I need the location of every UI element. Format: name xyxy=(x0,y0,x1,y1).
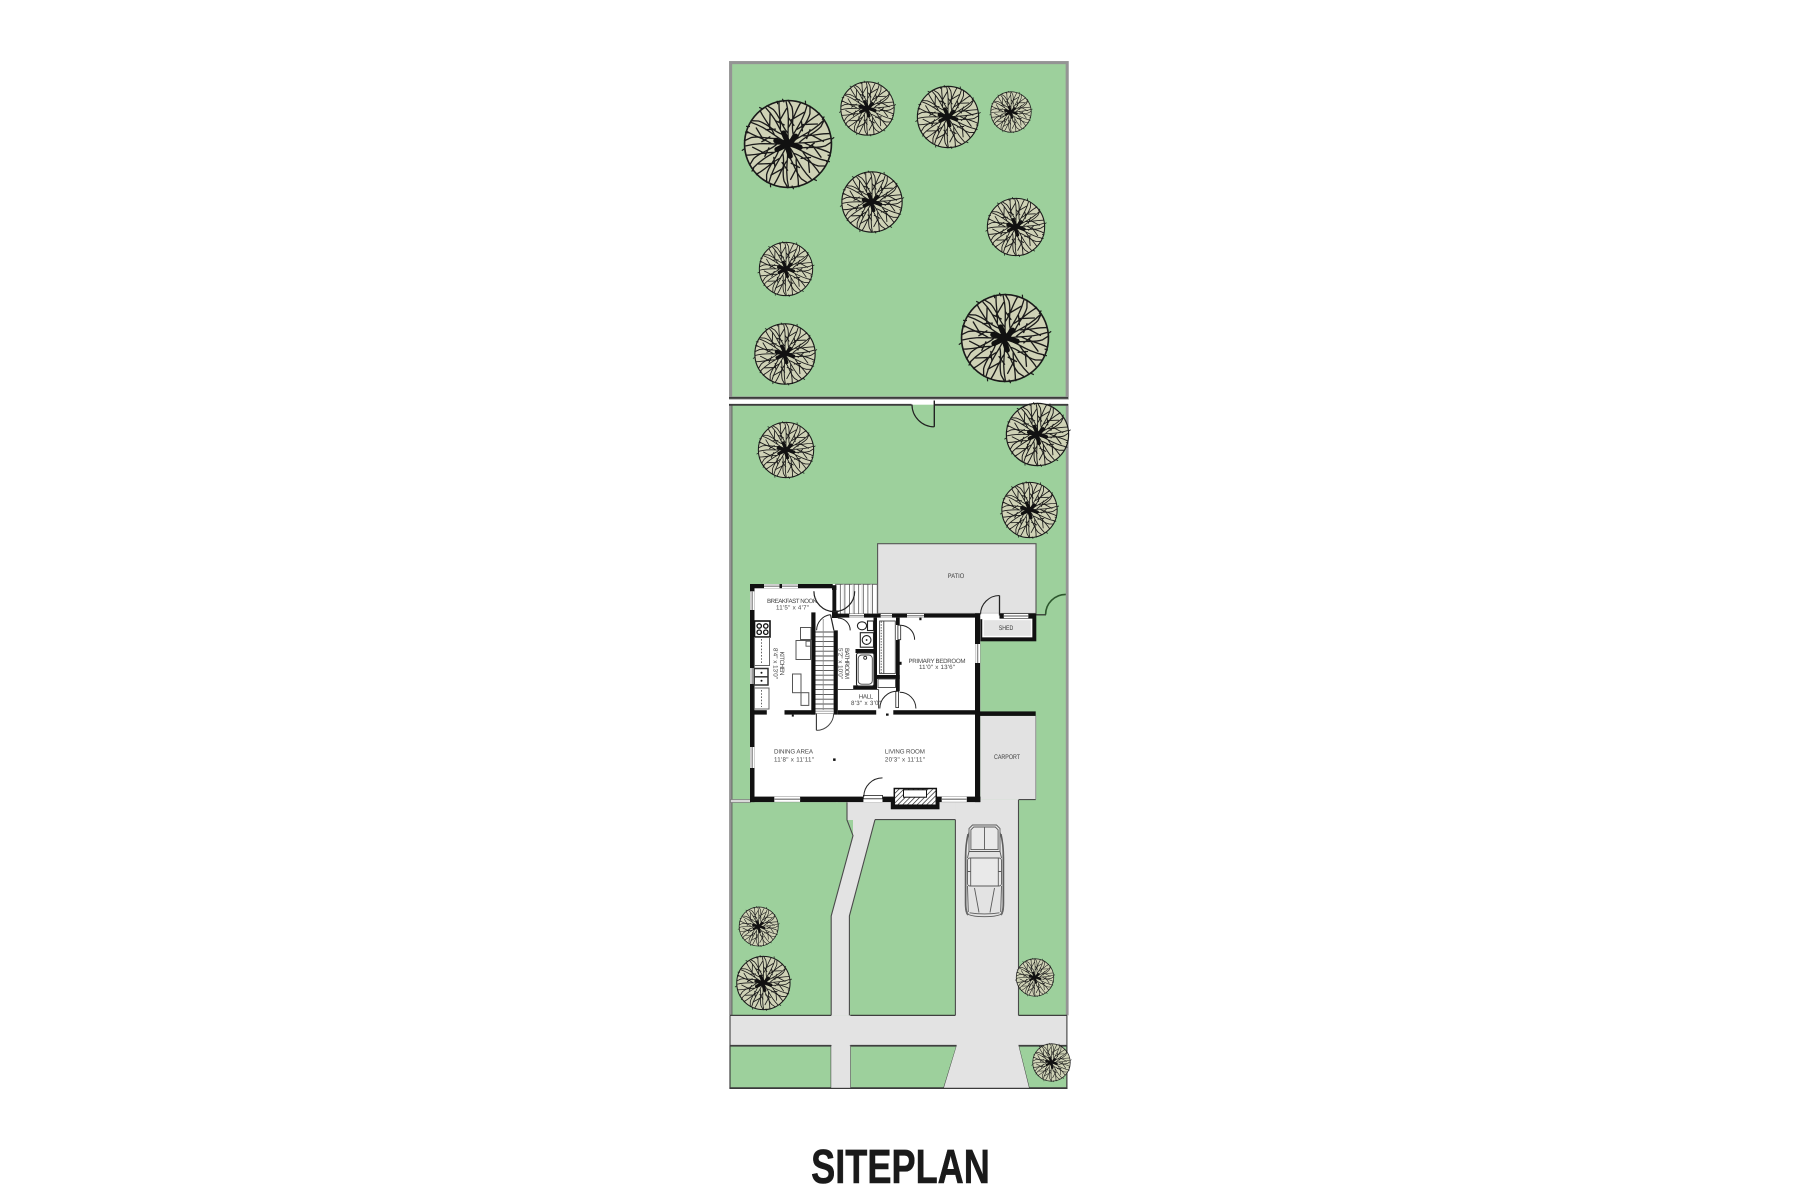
svg-text:8'3" x 3'0": 8'3" x 3'0" xyxy=(851,700,881,707)
svg-text:20'3" x 11'11": 20'3" x 11'11" xyxy=(885,756,925,763)
svg-text:SITEPLAN: SITEPLAN xyxy=(811,1141,990,1194)
svg-text:11'8" x 11'11": 11'8" x 11'11" xyxy=(774,756,814,763)
svg-text:SHED: SHED xyxy=(999,625,1014,632)
svg-text:PATIO: PATIO xyxy=(948,573,964,580)
svg-text:KITCHEN8'4" x 13'0": KITCHEN8'4" x 13'0" xyxy=(772,648,786,679)
svg-text:11'0" x 13'6": 11'0" x 13'6" xyxy=(919,664,955,671)
svg-text:DINING AREA: DINING AREA xyxy=(774,749,814,756)
svg-text:LIVING ROOM: LIVING ROOM xyxy=(885,749,925,756)
svg-text:BATHROOM5'2" x 10'0": BATHROOM5'2" x 10'0" xyxy=(837,648,851,679)
svg-text:11'5" x 4'7": 11'5" x 4'7" xyxy=(776,604,809,611)
svg-text:CARPORT: CARPORT xyxy=(994,754,1020,761)
